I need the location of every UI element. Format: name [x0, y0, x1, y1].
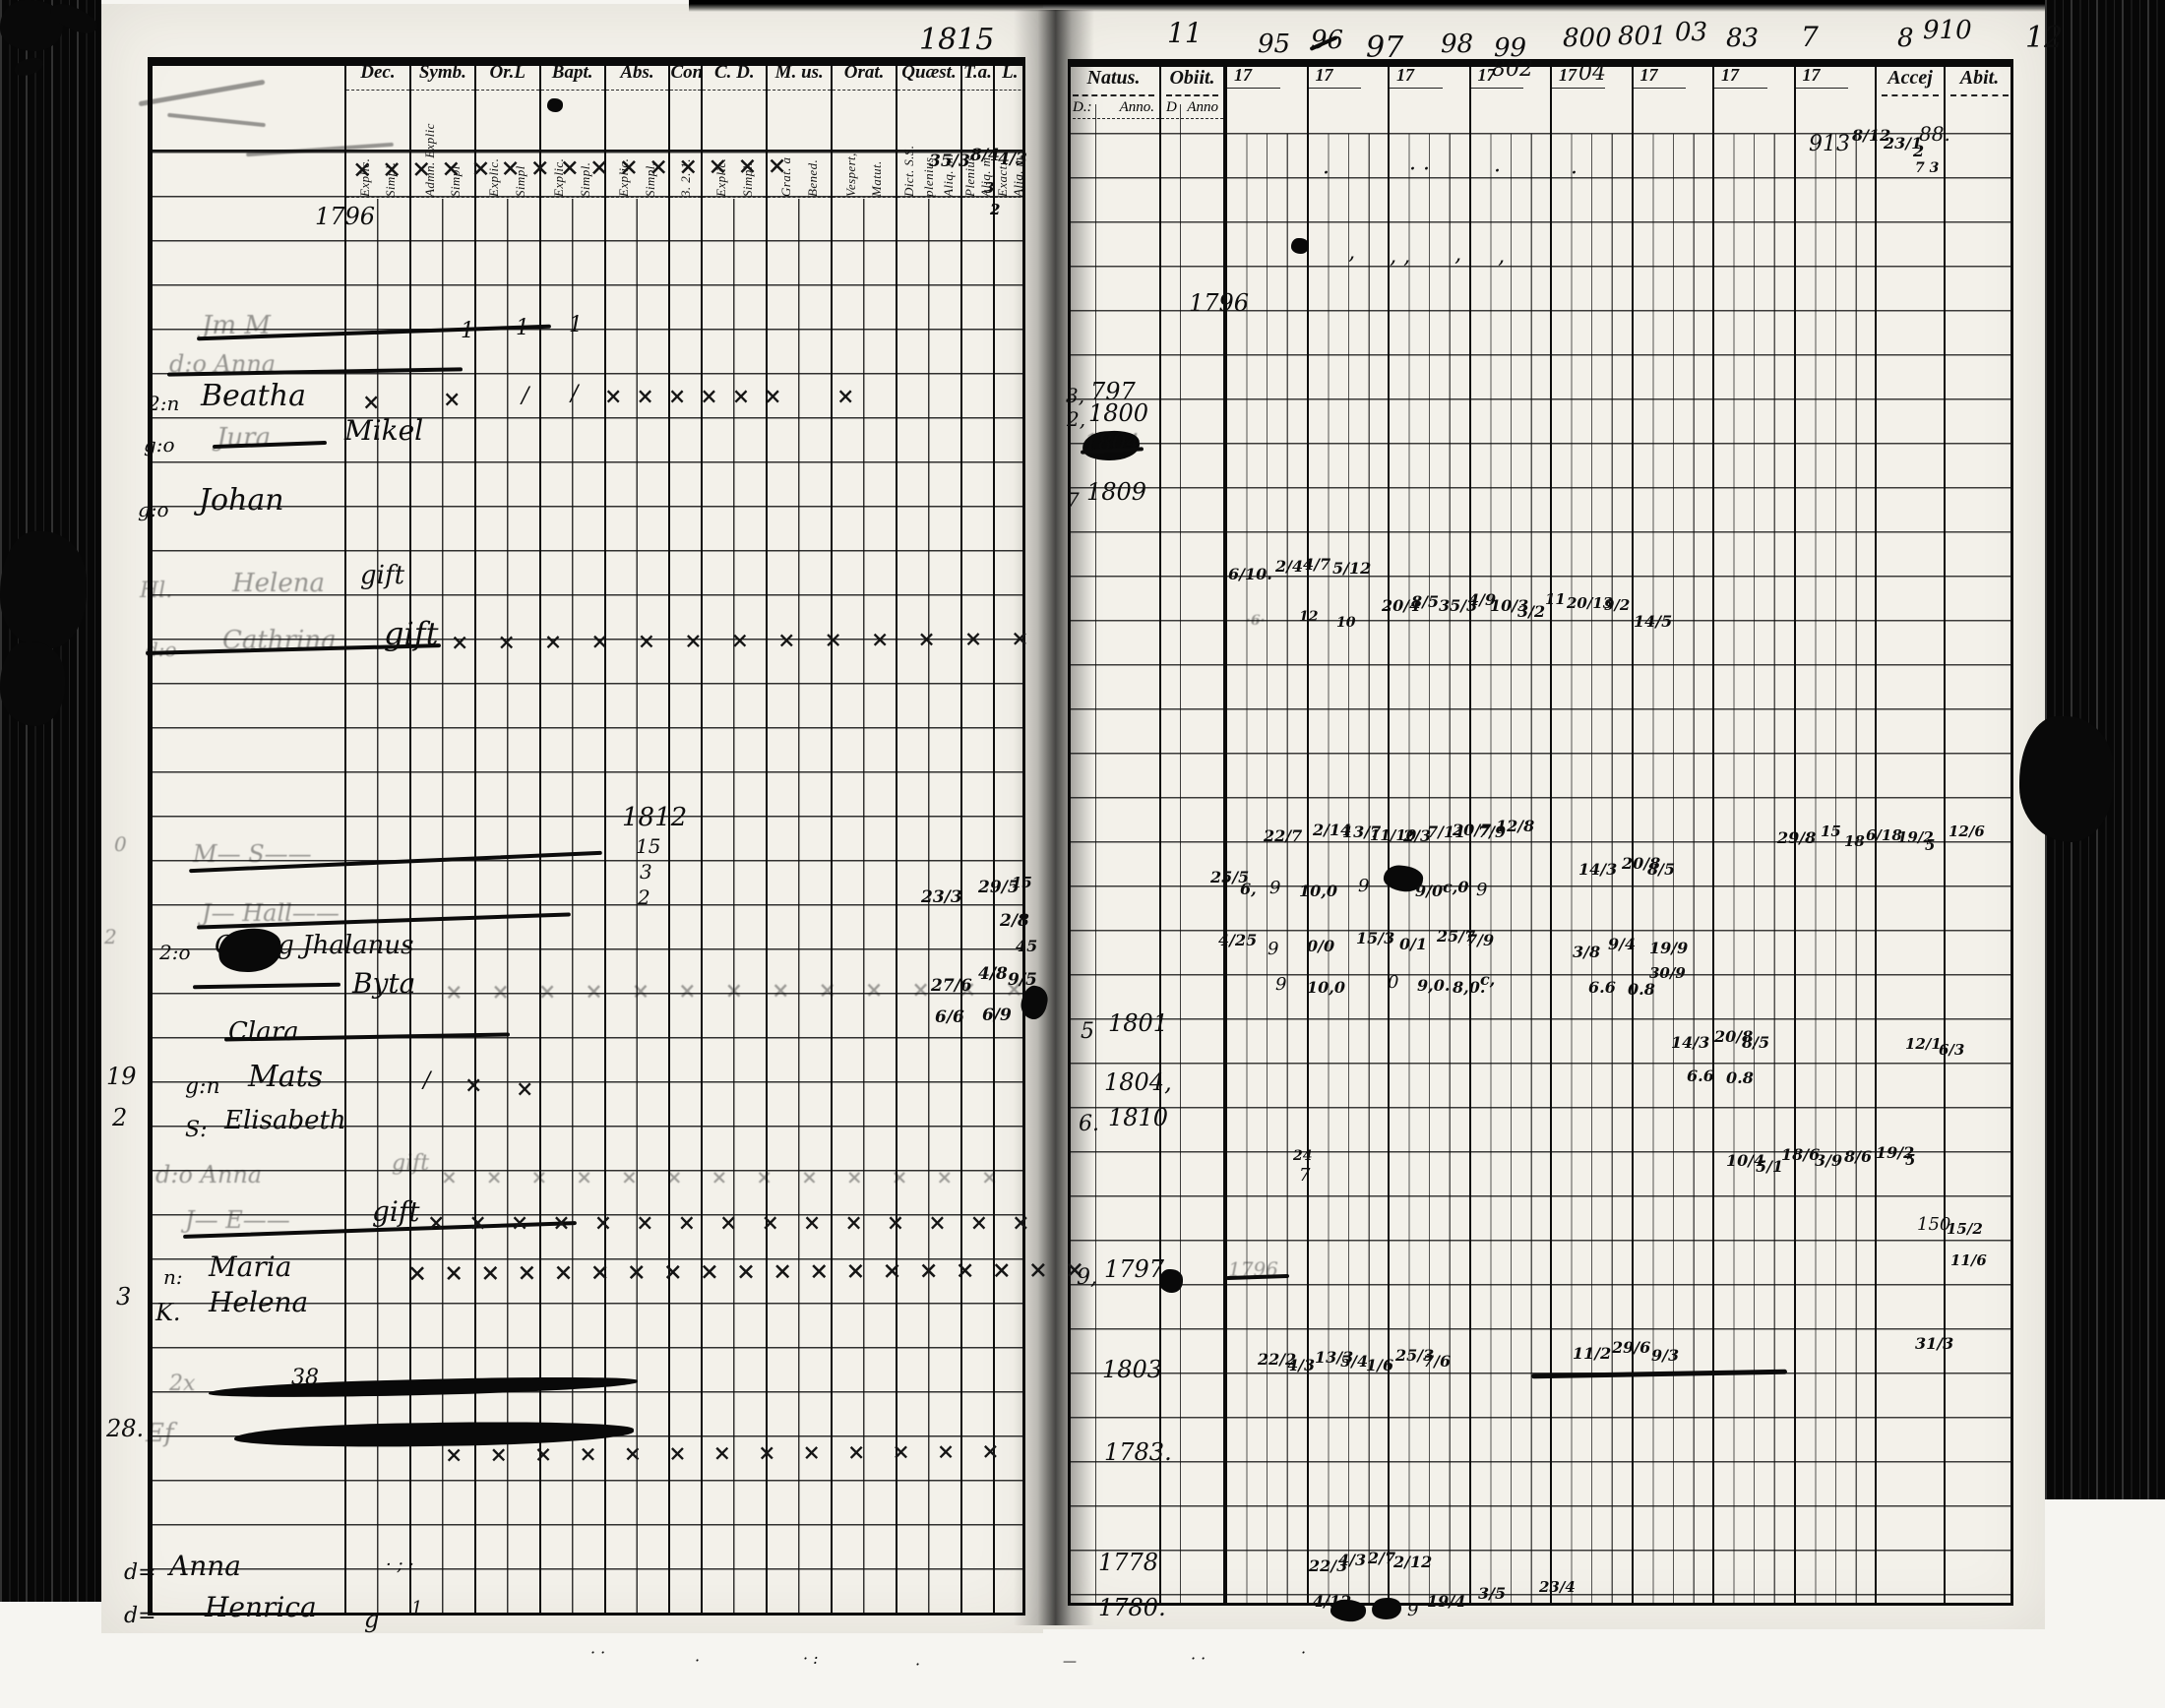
- year-printed-label: 17: [1390, 59, 1443, 89]
- gutter-shadow: [1014, 10, 1094, 1625]
- year-group: 17: [1388, 59, 1469, 1606]
- year-subcolumn-lines: [1796, 134, 1876, 1606]
- register-scan: Dec. Explic.Simpl. Symb. Admn. ExplicSim…: [0, 0, 2165, 1708]
- obiit-sub-anno: Anno: [1187, 99, 1218, 116]
- column-sublabel: Explic.: [616, 92, 632, 197]
- column-sublabel: Bened.: [805, 92, 821, 197]
- column-sublabel: Plenius.: [962, 92, 978, 197]
- column-sublabel: Simpl: [448, 92, 464, 197]
- column-sublabels: Explic.Simpl.: [703, 90, 766, 198]
- column-group: Quæst. Dict. S.S.plenius.Aliq. m.: [896, 57, 960, 1616]
- natus-sub-anno: Anno.: [1120, 99, 1154, 116]
- year-subcolumn-lines: [1634, 134, 1713, 1606]
- column-sublabel: Admn. Explic: [422, 92, 438, 197]
- column-sublabel: plenius.: [921, 92, 937, 197]
- column-lines: [541, 199, 604, 1616]
- column-sublabels: Admn. ExplicSimpl: [411, 90, 474, 198]
- column-lines: [606, 199, 669, 1616]
- year-subcolumn-lines: [1471, 134, 1551, 1606]
- column-lines: [833, 199, 896, 1616]
- year-group: 17: [1794, 59, 1876, 1606]
- book-binding-left: [0, 0, 101, 1602]
- column-group: C. D. Explic.Simpl.: [701, 57, 766, 1616]
- column-sublabels: Dict. S.S.plenius.Aliq. m.: [897, 90, 960, 198]
- handwriting: ·: [1301, 1645, 1306, 1661]
- column-sublabel: Simpl.: [383, 92, 399, 197]
- year-printed-label: 17: [1227, 59, 1280, 89]
- year-subcolumn-lines: [1552, 134, 1632, 1606]
- column-label: Orat.: [833, 57, 896, 90]
- column-lines: [768, 199, 831, 1616]
- acces-label: Accej: [1877, 59, 1944, 90]
- year-group: 17: [1225, 59, 1307, 1606]
- handwriting: · ·: [590, 1645, 605, 1661]
- book-binding-right: [2045, 0, 2165, 1499]
- column-label: Symb.: [411, 57, 474, 90]
- handwriting: · :: [803, 1651, 819, 1667]
- column-label: Conf.: [670, 57, 701, 90]
- column-sublabel: Explic.: [551, 92, 567, 197]
- column-group: Or.L Explic.Simpl: [474, 57, 539, 1616]
- column-sublabel: Explic.: [486, 92, 502, 197]
- column-sublabels: Explic.Simpl.: [541, 90, 604, 198]
- column-label: Dec.: [346, 57, 409, 90]
- year-group: 17: [1712, 59, 1794, 1606]
- column-sublabels: Grat. aBened.: [768, 90, 831, 198]
- year-printed-label: 17: [1471, 59, 1524, 89]
- obiit-sublabels: D Anno: [1161, 96, 1223, 119]
- year-group: 17: [1550, 59, 1632, 1606]
- column-lines: [670, 199, 701, 1616]
- column-lines: [411, 199, 474, 1616]
- column-label: Quæst.: [897, 57, 960, 90]
- column-sublabel: Aliq. m.: [941, 92, 957, 197]
- column-sublabels: Explic.Simpl: [476, 90, 539, 198]
- column-label: C. D.: [703, 57, 766, 90]
- year-subcolumn-lines: [1714, 134, 1794, 1606]
- column-sublabel: Matut.: [869, 92, 885, 197]
- column-sublabel: Simpl.: [643, 92, 658, 197]
- handwriting: · ·: [1191, 1651, 1206, 1667]
- column-sublabel: Dict. S.S.: [901, 92, 917, 197]
- year-printed-label: 17: [1552, 59, 1605, 89]
- column-sublabel: Simpl.: [578, 92, 593, 197]
- obiit-sub-d: D: [1166, 99, 1177, 116]
- year-subcolumn-lines: [1309, 134, 1389, 1606]
- column-sublabel: Explic.: [357, 92, 373, 197]
- column-lines: [703, 199, 766, 1616]
- column-group: Bapt. Explic.Simpl.: [539, 57, 604, 1616]
- abit-column: Abit.: [1944, 59, 2013, 1606]
- column-lines: [897, 199, 960, 1616]
- year-group: 17: [1469, 59, 1551, 1606]
- column-label: M. us.: [768, 57, 831, 90]
- year-columns: 17 17 17 17 17 17 17 17: [1225, 59, 1875, 1606]
- column-sublabel: Explic.: [713, 92, 729, 197]
- column-sublabel: 3. 2. 1.: [678, 92, 694, 197]
- column-sublabels: 3. 2. 1.: [670, 90, 701, 198]
- obiit-column: Obiit. D Anno: [1161, 59, 1225, 1606]
- column-sublabel: Grat. a: [778, 92, 794, 197]
- left-table-header: Dec. Explic.Simpl. Symb. Admn. ExplicSim…: [344, 57, 1025, 1616]
- column-group: Abs. Explic.Simpl.: [604, 57, 669, 1616]
- abit-label: Abit.: [1946, 59, 2013, 90]
- column-sublabels: Explic.Simpl.: [606, 90, 669, 198]
- column-sublabels: Plenius.Aliq. m.: [962, 90, 993, 198]
- year-printed-label: 17: [1309, 59, 1362, 89]
- book-top-edge: [689, 0, 2047, 12]
- year-printed-label: 17: [1714, 59, 1767, 89]
- acces-column: Accej: [1875, 59, 1944, 1606]
- year-subcolumn-lines: [1227, 134, 1307, 1606]
- column-sublabels: Explic.Simpl.: [346, 90, 409, 198]
- column-sublabels: Vespert,Matut.: [833, 90, 896, 198]
- year-subcolumn-lines: [1390, 134, 1469, 1606]
- column-group: Conf. 3. 2. 1.: [668, 57, 701, 1616]
- column-group: Orat. Vespert,Matut.: [831, 57, 896, 1616]
- handwriting: ·: [915, 1657, 920, 1673]
- column-group: Dec. Explic.Simpl.: [344, 57, 409, 1616]
- year-printed-label: 17: [1796, 59, 1849, 89]
- year-group: 17: [1307, 59, 1389, 1606]
- column-sublabel: Aliq. m.: [978, 92, 994, 197]
- column-label: Abs.: [606, 57, 669, 90]
- column-group: M. us. Grat. aBened.: [766, 57, 831, 1616]
- column-lines: [476, 199, 539, 1616]
- handwriting: ·: [695, 1653, 700, 1669]
- column-label: T.a.: [962, 57, 993, 90]
- column-group: Symb. Admn. ExplicSimpl: [409, 57, 474, 1616]
- obiit-label: Obiit.: [1161, 59, 1223, 90]
- column-sublabel: Exact.: [995, 92, 1011, 197]
- column-group: T.a. Plenius.Aliq. m.: [960, 57, 993, 1616]
- column-sublabel: Simpl: [513, 92, 528, 197]
- divider: [1950, 92, 2009, 96]
- year-group: 17: [1632, 59, 1713, 1606]
- handwriting: —: [1063, 1655, 1077, 1669]
- column-lines: [346, 199, 409, 1616]
- column-lines: [962, 199, 993, 1616]
- column-sublabel: Vespert,: [843, 92, 859, 197]
- column-sublabel: Simpl.: [740, 92, 756, 197]
- divider: [1882, 92, 1939, 96]
- column-label: Or.L: [476, 57, 539, 90]
- column-label: Bapt.: [541, 57, 604, 90]
- year-printed-label: 17: [1634, 59, 1687, 89]
